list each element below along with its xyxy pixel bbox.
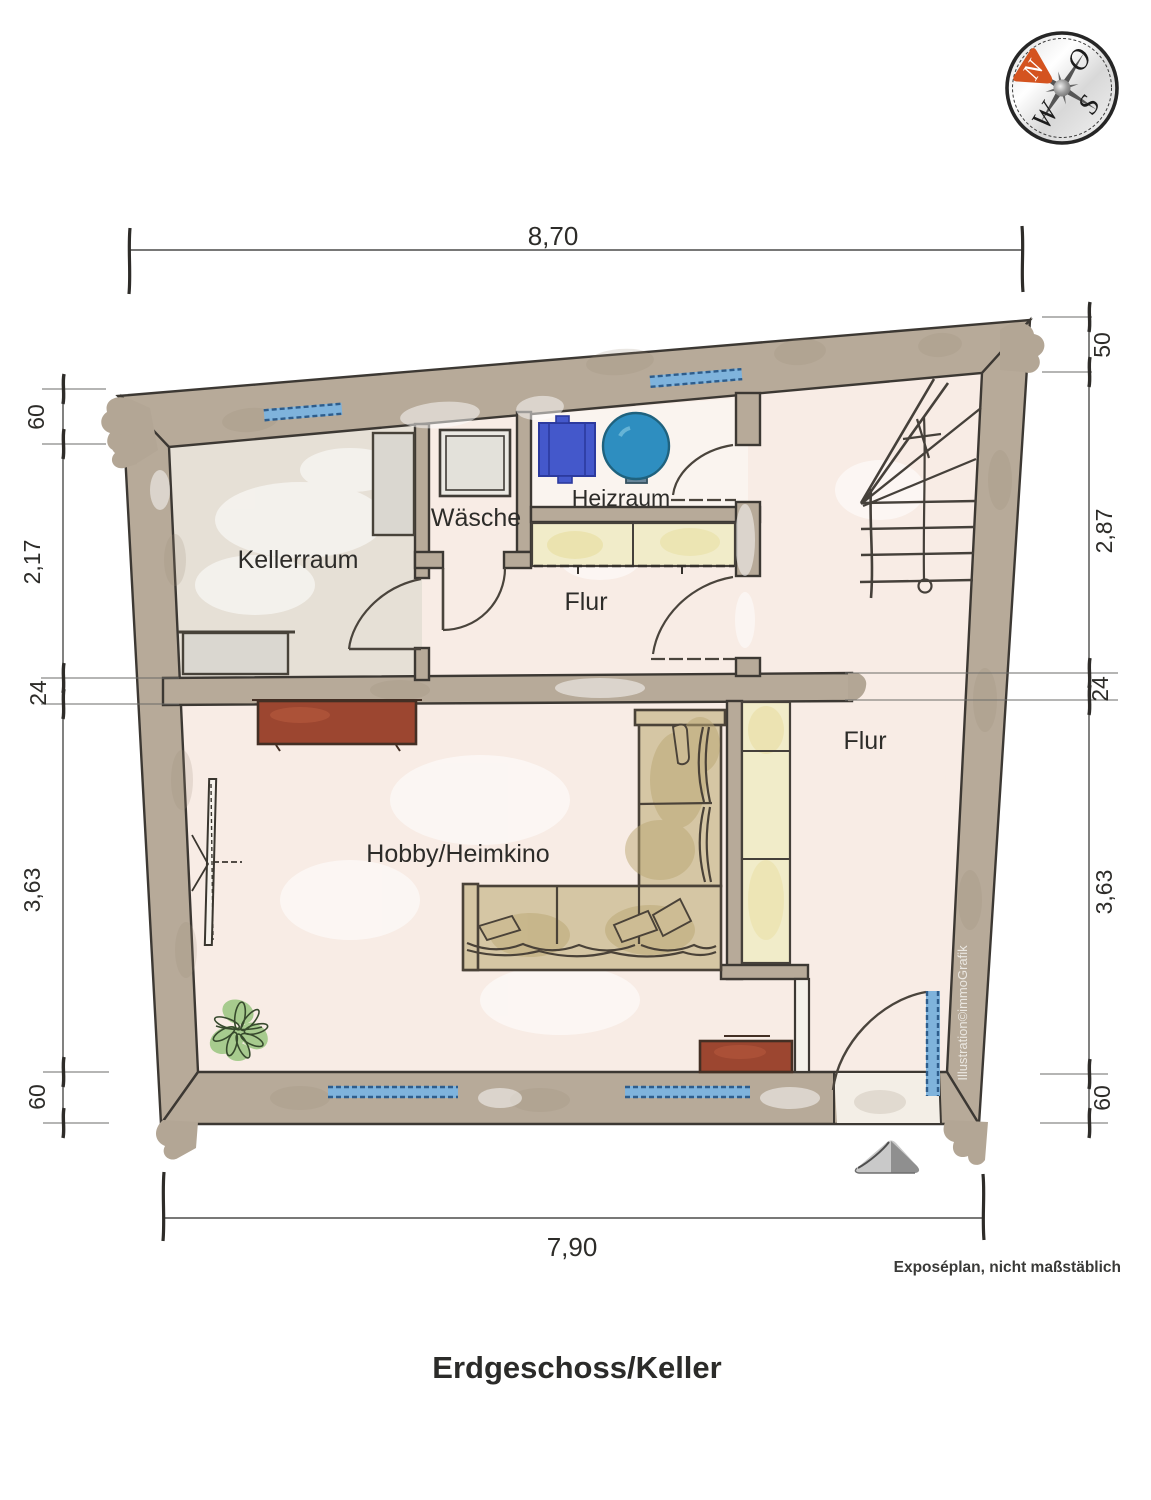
svg-text:2,87: 2,87 <box>1091 509 1117 554</box>
svg-text:2,17: 2,17 <box>19 540 45 585</box>
svg-text:24: 24 <box>25 680 51 706</box>
svg-text:Flur: Flur <box>564 588 607 616</box>
svg-text:Illustration©immoGrafik: Illustration©immoGrafik <box>955 945 970 1081</box>
svg-text:60: 60 <box>1089 1085 1115 1111</box>
svg-text:8,70: 8,70 <box>528 221 579 251</box>
svg-text:3,63: 3,63 <box>19 868 45 913</box>
svg-text:50: 50 <box>1089 332 1115 358</box>
svg-text:Hobby/Heimkino: Hobby/Heimkino <box>366 840 549 868</box>
svg-text:Wäsche: Wäsche <box>431 504 521 532</box>
svg-text:60: 60 <box>23 404 49 430</box>
svg-text:24: 24 <box>1087 676 1113 702</box>
svg-text:7,90: 7,90 <box>547 1232 598 1262</box>
svg-text:Heizraum: Heizraum <box>572 485 670 511</box>
svg-text:60: 60 <box>24 1084 50 1110</box>
svg-text:3,63: 3,63 <box>1091 870 1117 915</box>
svg-text:Flur: Flur <box>843 727 886 755</box>
svg-text:Kellerraum: Kellerraum <box>238 546 359 574</box>
svg-text:Exposéplan, nicht maßstäblich: Exposéplan, nicht maßstäblich <box>894 1259 1121 1276</box>
svg-text:Erdgeschoss/Keller: Erdgeschoss/Keller <box>432 1350 721 1385</box>
